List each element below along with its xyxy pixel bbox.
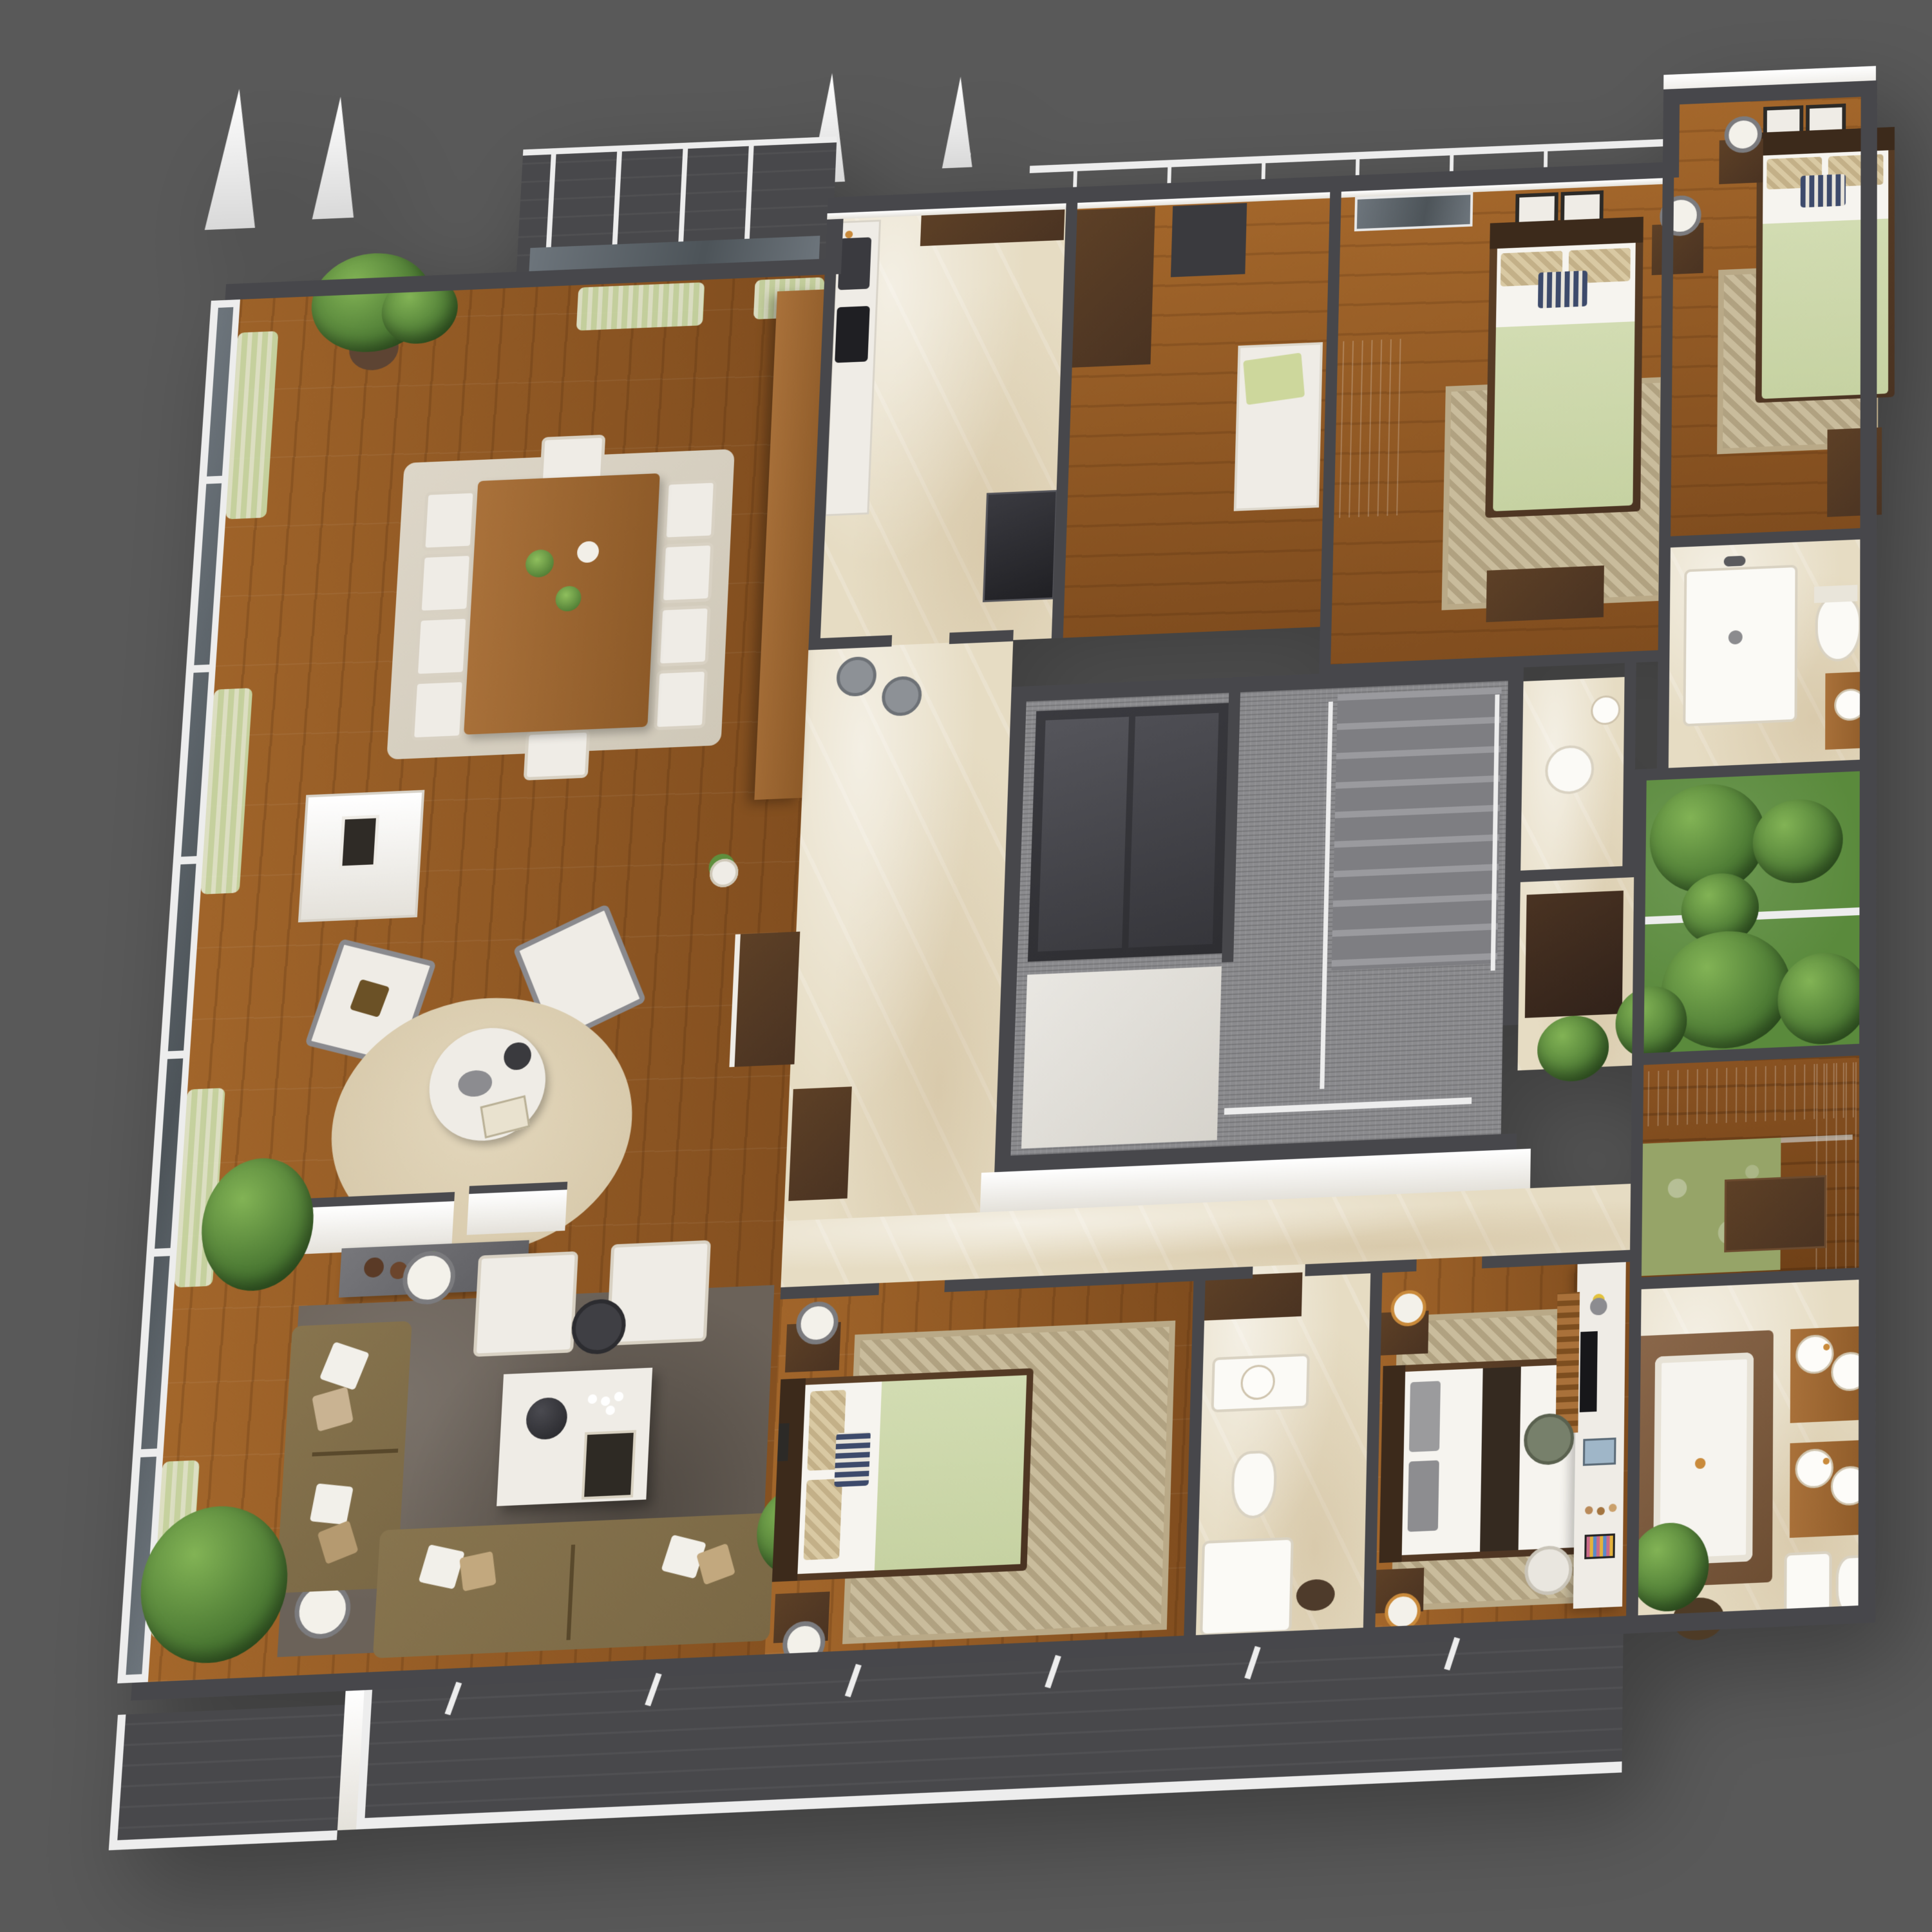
dining-chair <box>657 605 711 667</box>
bidet <box>1784 1551 1832 1614</box>
shower-pan <box>1200 1537 1294 1636</box>
staircase <box>1332 687 1502 971</box>
duvet-green <box>1493 321 1634 511</box>
pillow-tan <box>804 1479 843 1560</box>
roof-sail-icon <box>205 88 265 230</box>
bench-cushion-green <box>1243 352 1305 405</box>
shower-pan <box>1683 565 1797 726</box>
glass-wall-mullion <box>160 1050 190 1059</box>
roof-rail-post <box>1262 163 1265 179</box>
laptop <box>1583 1437 1616 1466</box>
bed-runner-brown <box>1480 1367 1521 1551</box>
coffee-table-tray <box>582 1430 636 1499</box>
floor-plan <box>67 62 1876 1855</box>
elevator-doors <box>1037 717 1129 952</box>
duvet-green <box>875 1375 1027 1570</box>
makeup-palette <box>1584 1533 1615 1559</box>
bedroom3-sliding-door <box>1354 192 1473 231</box>
wall-step <box>824 197 844 275</box>
framed-print <box>777 1423 790 1461</box>
roof-rail-post <box>1356 159 1359 175</box>
pillow-accent-navy <box>1538 270 1587 308</box>
pillow-accent-navy <box>1801 174 1846 207</box>
elevator-doors <box>1128 713 1218 948</box>
green-curtain-top <box>576 282 705 330</box>
tall-cabinet <box>1070 207 1155 368</box>
closet-island <box>1724 1175 1826 1253</box>
pillow-accent-navy <box>834 1432 871 1487</box>
sofa-section-horizontal <box>373 1513 775 1658</box>
hall-cabinet <box>1525 891 1624 1018</box>
glass-wall-mullion <box>173 856 203 865</box>
partition-panel <box>467 1182 568 1235</box>
cooktop <box>835 306 870 363</box>
terrace-left <box>109 1705 345 1850</box>
headboard <box>1379 1365 1406 1563</box>
hall-storage <box>788 1086 851 1201</box>
pillow-gray <box>1409 1381 1441 1452</box>
roof-rail-post <box>1167 167 1171 184</box>
dining-chair <box>418 553 473 614</box>
dresser <box>1486 565 1604 622</box>
glass-wall-mullion <box>186 664 216 673</box>
range-oven <box>983 490 1058 602</box>
roof-sail-icon <box>312 96 361 220</box>
shower-head <box>1724 556 1746 567</box>
roof-rail-post <box>1544 151 1548 167</box>
glass-wall-mullion <box>146 1247 177 1256</box>
dining-chair <box>415 616 469 677</box>
fireplace-art <box>339 815 379 869</box>
scene-background <box>0 0 1932 1932</box>
dining-chair <box>663 480 717 541</box>
roof-sail-icon <box>942 76 976 168</box>
tv-slat-panel <box>1556 1292 1580 1434</box>
glass-wall-mullion <box>198 475 228 484</box>
toilet-tank <box>1814 585 1857 603</box>
dark-shelf <box>1171 203 1247 277</box>
cream-armchair <box>473 1251 578 1357</box>
glass-wall-mullion <box>133 1448 164 1458</box>
roof-rail-post <box>1450 155 1454 171</box>
tv-screen <box>1580 1331 1598 1412</box>
dining-chair <box>422 490 476 551</box>
elevator-lobby-floor <box>1021 966 1222 1148</box>
dining-chair <box>524 729 591 781</box>
wardrobe <box>1339 339 1401 518</box>
exterior-wall-right <box>1858 80 1877 1624</box>
sofa-pillow-white <box>310 1483 354 1524</box>
roof-rail-post <box>1073 171 1077 187</box>
wall-closet-left <box>1629 1053 1643 1289</box>
entry-console <box>729 932 800 1067</box>
pillow-gray <box>1408 1460 1439 1531</box>
kitchen-sink <box>838 237 871 290</box>
dining-chair <box>660 542 714 603</box>
dining-chair <box>654 668 708 730</box>
dining-chair <box>411 679 466 741</box>
